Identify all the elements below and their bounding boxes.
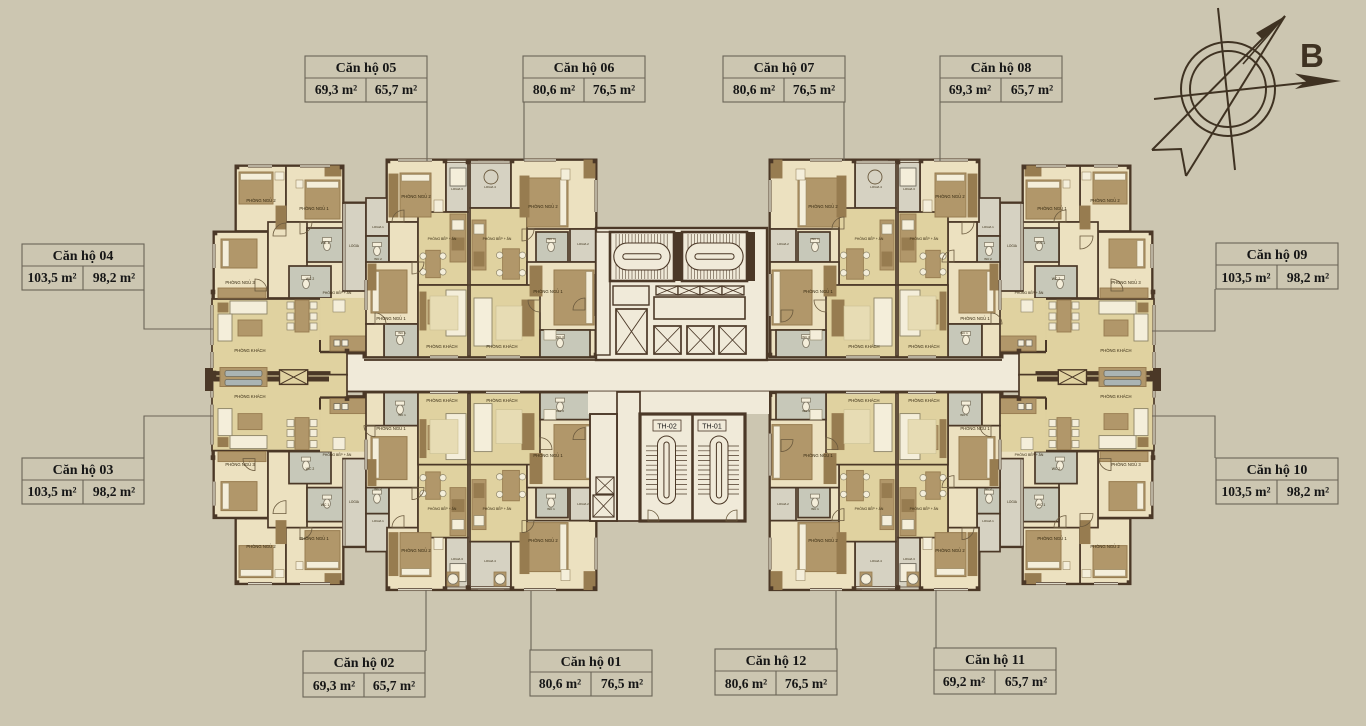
svg-text:103,5 m²: 103,5 m² [27,484,76,499]
svg-text:80,6 m²: 80,6 m² [539,676,581,691]
svg-text:76,5 m²: 76,5 m² [593,82,635,97]
svg-text:98,2 m²: 98,2 m² [1287,270,1329,285]
svg-text:PHÒNG BẾP + ĂN: PHÒNG BẾP + ĂN [1015,290,1044,295]
svg-text:PHÒNG BẾP + ĂN: PHÒNG BẾP + ĂN [428,236,457,241]
svg-text:WC 1: WC 1 [811,507,819,511]
svg-text:LOGIA 4: LOGIA 4 [484,185,496,189]
svg-text:PHÒNG NGỦ 2: PHÒNG NGỦ 2 [808,538,838,543]
svg-text:LOGIA 4: LOGIA 4 [870,559,882,563]
svg-text:Căn hộ 11: Căn hộ 11 [965,653,1025,668]
svg-text:LOGIA 2: LOGIA 2 [577,242,589,246]
svg-text:98,2 m²: 98,2 m² [93,484,135,499]
svg-text:Căn hộ 04: Căn hộ 04 [53,249,114,264]
svg-text:LOGIA 3: LOGIA 3 [451,557,463,561]
svg-text:Căn hộ 10: Căn hộ 10 [1247,463,1308,478]
svg-text:76,5 m²: 76,5 m² [793,82,835,97]
svg-text:PHÒNG NGỦ 2: PHÒNG NGỦ 2 [246,198,276,203]
svg-text:WC 2: WC 2 [984,257,992,261]
svg-text:WC 3: WC 3 [802,409,810,413]
svg-text:WC 1: WC 1 [960,413,968,417]
svg-text:PHÒNG KHÁCH: PHÒNG KHÁCH [1100,394,1131,399]
svg-text:WC 2: WC 2 [374,257,382,261]
svg-text:69,3 m²: 69,3 m² [949,82,991,97]
svg-text:PHÒNG KHÁCH: PHÒNG KHÁCH [848,344,879,349]
svg-text:WC 2: WC 2 [306,467,315,471]
svg-text:69,3 m²: 69,3 m² [313,678,355,693]
svg-text:PHÒNG NGỦ 1: PHÒNG NGỦ 1 [299,536,329,541]
svg-text:Căn hộ 12: Căn hộ 12 [746,654,807,669]
svg-text:PHÒNG NGỦ 2: PHÒNG NGỦ 2 [808,204,838,209]
svg-text:PHÒNG KHÁCH: PHÒNG KHÁCH [908,344,939,349]
svg-text:PHÒNG NGỦ 1: PHÒNG NGỦ 1 [803,289,833,294]
svg-text:80,6 m²: 80,6 m² [733,82,775,97]
svg-text:PHÒNG KHÁCH: PHÒNG KHÁCH [486,344,517,349]
svg-text:PHÒNG NGỦ 1: PHÒNG NGỦ 1 [1037,206,1067,211]
svg-text:PHÒNG NGỦ 1: PHÒNG NGỦ 1 [533,289,563,294]
svg-text:80,6 m²: 80,6 m² [533,82,575,97]
svg-text:WC 1: WC 1 [398,413,406,417]
svg-text:Căn hộ 01: Căn hộ 01 [561,655,622,670]
svg-text:LOGIA 3: LOGIA 3 [903,557,915,561]
svg-text:65,7 m²: 65,7 m² [1011,82,1053,97]
svg-text:65,7 m²: 65,7 m² [373,678,415,693]
svg-text:PHÒNG NGỦ 2: PHÒNG NGỦ 2 [528,204,558,209]
svg-text:PHÒNG NGỦ 1: PHÒNG NGỦ 1 [376,316,406,321]
svg-text:LOGIA 2: LOGIA 2 [777,502,789,506]
svg-text:PHÒNG KHÁCH: PHÒNG KHÁCH [426,344,457,349]
svg-text:LOGIA 4: LOGIA 4 [870,185,882,189]
svg-text:PHÒNG NGỦ 2: PHÒNG NGỦ 2 [1090,544,1120,549]
svg-text:PHÒNG KHÁCH: PHÒNG KHÁCH [234,348,265,353]
svg-text:LOGIA 1: LOGIA 1 [372,519,384,523]
svg-text:PHÒNG BẾP + ĂN: PHÒNG BẾP + ĂN [323,290,352,295]
svg-text:PHÒNG KHÁCH: PHÒNG KHÁCH [908,398,939,403]
svg-text:WC 1: WC 1 [811,237,819,241]
svg-text:LOGIA 1: LOGIA 1 [982,519,994,523]
svg-text:PHÒNG NGỦ 2: PHÒNG NGỦ 2 [1090,198,1120,203]
svg-text:PHÒNG NGỦ 3: PHÒNG NGỦ 3 [225,462,255,467]
svg-text:PHÒNG NGỦ 2: PHÒNG NGỦ 2 [528,538,558,543]
svg-text:WC 1: WC 1 [960,331,968,335]
svg-text:Căn hộ 05: Căn hộ 05 [336,61,397,76]
svg-text:WC 1: WC 1 [547,237,555,241]
svg-text:PHÒNG NGỦ 3: PHÒNG NGỦ 3 [1111,280,1141,285]
svg-text:PHÒNG BẾP + ĂN: PHÒNG BẾP + ĂN [910,506,939,511]
svg-text:PHÒNG NGỦ 2: PHÒNG NGỦ 2 [401,548,431,553]
svg-text:LOGIA 3: LOGIA 3 [451,187,463,191]
svg-text:65,7 m²: 65,7 m² [375,82,417,97]
svg-text:WC 2: WC 2 [984,487,992,491]
svg-text:WC 3: WC 3 [556,409,564,413]
svg-text:PHÒNG BẾP + ĂN: PHÒNG BẾP + ĂN [910,236,939,241]
svg-text:PHÒNG KHÁCH: PHÒNG KHÁCH [848,398,879,403]
svg-text:PHÒNG BẾP + ĂN: PHÒNG BẾP + ĂN [855,236,884,241]
svg-text:69,2 m²: 69,2 m² [943,674,985,689]
svg-text:PHÒNG BẾP + ĂN: PHÒNG BẾP + ĂN [1015,452,1044,457]
svg-text:Căn hộ 06: Căn hộ 06 [554,61,615,76]
svg-text:WC 1: WC 1 [1037,241,1046,245]
svg-text:80,6 m²: 80,6 m² [725,676,767,691]
svg-text:PHÒNG NGỦ 2: PHÒNG NGỦ 2 [401,194,431,199]
svg-text:WC 1: WC 1 [321,241,330,245]
svg-text:LOGIA 2: LOGIA 2 [777,242,789,246]
svg-text:PHÒNG NGỦ 1: PHÒNG NGỦ 1 [1037,536,1067,541]
svg-text:103,5 m²: 103,5 m² [1221,270,1270,285]
svg-text:98,2 m²: 98,2 m² [1287,484,1329,499]
svg-text:WC 2: WC 2 [1052,277,1061,281]
svg-text:WC 1: WC 1 [321,503,330,507]
svg-text:PHÒNG KHÁCH: PHÒNG KHÁCH [234,394,265,399]
svg-text:PHÒNG KHÁCH: PHÒNG KHÁCH [1100,348,1131,353]
svg-text:Căn hộ 03: Căn hộ 03 [53,463,114,478]
svg-text:PHÒNG NGỦ 2: PHÒNG NGỦ 2 [935,548,965,553]
svg-text:103,5 m²: 103,5 m² [1221,484,1270,499]
svg-text:98,2 m²: 98,2 m² [93,270,135,285]
svg-text:LOGIA: LOGIA [1007,500,1018,504]
svg-text:Căn hộ 07: Căn hộ 07 [754,61,815,76]
svg-text:WC 1: WC 1 [547,507,555,511]
svg-text:PHÒNG KHÁCH: PHÒNG KHÁCH [486,398,517,403]
svg-text:LOGIA: LOGIA [349,500,360,504]
svg-text:Căn hộ 02: Căn hộ 02 [334,656,395,671]
svg-text:LOGIA 1: LOGIA 1 [372,225,384,229]
svg-text:PHÒNG KHÁCH: PHÒNG KHÁCH [426,398,457,403]
svg-text:PHÒNG BẾP + ĂN: PHÒNG BẾP + ĂN [323,452,352,457]
svg-text:WC 2: WC 2 [1052,467,1061,471]
svg-text:WC 3: WC 3 [802,335,810,339]
svg-text:LOGIA 1: LOGIA 1 [982,225,994,229]
svg-text:LOGIA: LOGIA [1007,244,1018,248]
svg-text:PHÒNG NGỦ 1: PHÒNG NGỦ 1 [960,316,990,321]
svg-text:PHÒNG NGỦ 1: PHÒNG NGỦ 1 [960,426,990,431]
svg-text:LOGIA 4: LOGIA 4 [484,559,496,563]
svg-text:Căn hộ 08: Căn hộ 08 [971,61,1032,76]
svg-text:PHÒNG NGỦ 1: PHÒNG NGỦ 1 [376,426,406,431]
svg-text:B: B [1300,37,1324,74]
svg-text:TH-02: TH-02 [657,424,677,431]
svg-text:LOGIA: LOGIA [349,244,360,248]
svg-text:WC 2: WC 2 [374,487,382,491]
svg-text:WC 1: WC 1 [1037,503,1046,507]
svg-text:TH-01: TH-01 [702,424,722,431]
svg-text:103,5 m²: 103,5 m² [27,270,76,285]
svg-text:PHÒNG NGỦ 1: PHÒNG NGỦ 1 [533,453,563,458]
svg-text:PHÒNG NGỦ 2: PHÒNG NGỦ 2 [246,544,276,549]
svg-text:PHÒNG NGỦ 2: PHÒNG NGỦ 2 [935,194,965,199]
svg-text:69,3 m²: 69,3 m² [315,82,357,97]
svg-text:LOGIA 3: LOGIA 3 [903,187,915,191]
svg-text:PHÒNG BẾP + ĂN: PHÒNG BẾP + ĂN [855,506,884,511]
svg-text:PHÒNG BẾP + ĂN: PHÒNG BẾP + ĂN [483,506,512,511]
svg-text:PHÒNG NGỦ 1: PHÒNG NGỦ 1 [299,206,329,211]
svg-text:WC 2: WC 2 [306,277,315,281]
svg-text:PHÒNG BẾP + ĂN: PHÒNG BẾP + ĂN [483,236,512,241]
svg-text:PHÒNG BẾP + ĂN: PHÒNG BẾP + ĂN [428,506,457,511]
svg-text:65,7 m²: 65,7 m² [1005,674,1047,689]
svg-text:LOGIA 2: LOGIA 2 [577,502,589,506]
svg-text:76,5 m²: 76,5 m² [601,676,643,691]
svg-text:WC 3: WC 3 [556,335,564,339]
svg-text:PHÒNG NGỦ 3: PHÒNG NGỦ 3 [1111,462,1141,467]
svg-text:WC 1: WC 1 [398,331,406,335]
svg-text:Căn hộ 09: Căn hộ 09 [1247,248,1308,263]
svg-text:76,5 m²: 76,5 m² [785,676,827,691]
svg-text:PHÒNG NGỦ 3: PHÒNG NGỦ 3 [225,280,255,285]
svg-text:PHÒNG NGỦ 1: PHÒNG NGỦ 1 [803,453,833,458]
